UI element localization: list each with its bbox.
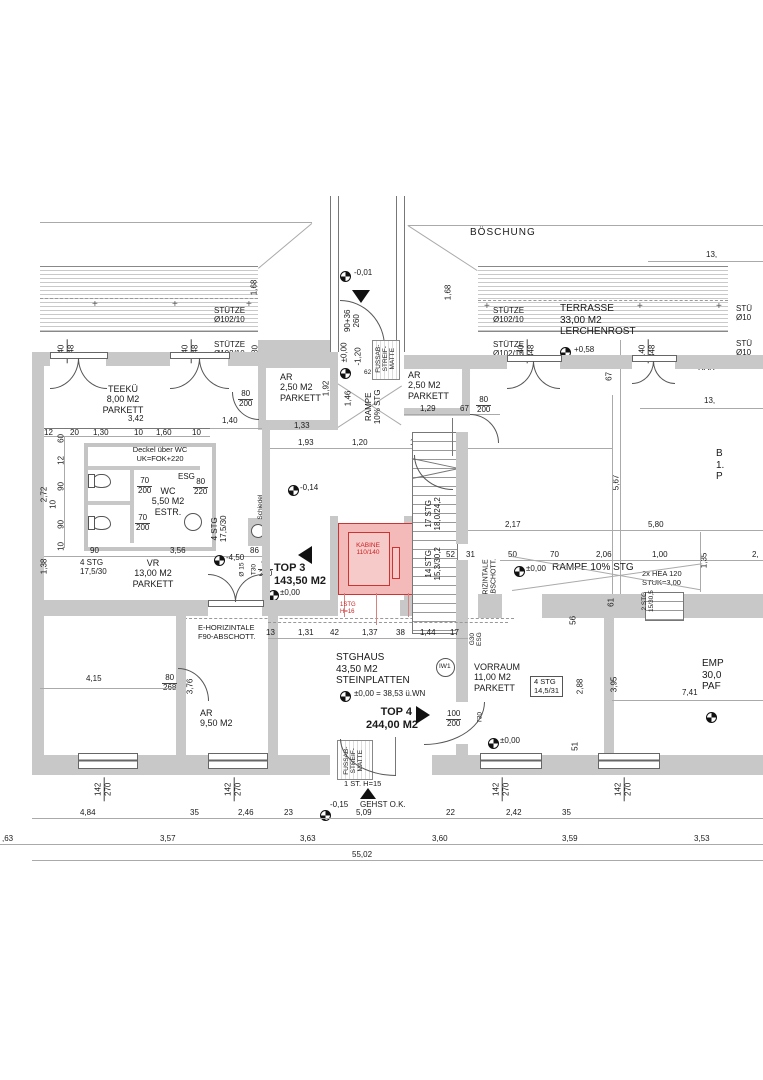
column-marker: + <box>637 302 643 312</box>
l2: 15/30,5 <box>648 583 655 619</box>
wall-segment <box>542 594 645 618</box>
stair-label-2stg: 2 STG15/30,5 <box>641 583 655 619</box>
column-size: Ø10 <box>736 313 752 322</box>
door-size-80-268: 80268 <box>162 674 177 693</box>
dim-label: 1,33 <box>294 421 310 430</box>
door-arc <box>170 358 200 389</box>
dim-label: 3,56 <box>170 546 186 555</box>
elevator-pit-line <box>408 593 409 617</box>
level-marker <box>288 485 299 496</box>
wall-segment <box>682 594 763 618</box>
dim-label: 1,29 <box>420 404 436 413</box>
room-label-ar-bottom: AR9,50 M2 <box>200 708 233 729</box>
dim-label: 2,42 <box>506 808 522 817</box>
ramp-label: RAMPE 10% STG <box>552 562 634 574</box>
dim-line <box>32 818 763 819</box>
elevator-label: KABINE110/140 <box>346 542 390 557</box>
wall-segment <box>262 428 270 602</box>
dim-label: 1,68 <box>251 272 260 302</box>
dim-label: 86 <box>250 546 259 555</box>
num: 80 <box>165 673 174 682</box>
floor-plan: BÖSCHUNG + + + + + + STÜTZEØ102/10 STÜTZ… <box>0 0 763 1080</box>
room-finish: PARKETT <box>408 391 449 401</box>
room-label-ar-right: AR2,50 M2PARKETT <box>408 370 449 401</box>
dim-line <box>268 638 468 639</box>
dim-line <box>468 530 763 531</box>
wall-segment <box>258 340 330 368</box>
dim-line <box>64 436 65 548</box>
dim-label: 3,63 <box>300 834 316 843</box>
level-value: ±0,00 <box>341 337 350 367</box>
l2: 10% STG <box>374 385 383 429</box>
level-value: -1,20 <box>355 341 364 371</box>
wall-segment <box>456 432 468 544</box>
room-area: 11,00 M2 <box>474 672 520 682</box>
entrance-arrow-icon <box>352 290 370 303</box>
stair-label-14stg: 14 STG15,3/30,2 <box>425 540 443 588</box>
room-finish: PARKETT <box>88 405 158 415</box>
dim-label: 1,31 <box>298 628 314 637</box>
wall-segment <box>675 355 763 369</box>
mat-label: FUSSAB-STREIF-MATTE <box>375 331 396 386</box>
dim-label: 1,00 <box>652 550 668 559</box>
column-name: STÜ <box>736 339 752 348</box>
dim-label: 4,15 <box>86 674 102 683</box>
wall-segment <box>258 340 266 430</box>
den: 270 <box>104 777 114 801</box>
column-label-clipped: STÜØ10 <box>736 304 752 322</box>
elevator-cab-inner <box>348 532 390 586</box>
dim-label: 67 <box>606 366 615 386</box>
level-value: -0,01 <box>354 268 372 277</box>
l2: STREIF- <box>382 331 389 386</box>
l2: ESG <box>476 625 483 653</box>
dim-label: 42 <box>330 628 339 637</box>
dim-label-clipped: 13, <box>706 250 717 259</box>
dim-label: 1,40 <box>222 416 238 425</box>
elevator-shaft-wall <box>330 516 338 602</box>
dim-label: 1,93 <box>298 438 314 447</box>
dim-label: 35 <box>190 808 199 817</box>
level-value: ±0,00 <box>280 588 300 597</box>
column-name: STÜTZE <box>493 306 524 315</box>
room-label-terrasse: TERRASSE33,00 M2LERCHENROST <box>560 303 636 338</box>
room-label-top3: TOP 3143,50 M2 <box>274 562 326 587</box>
dim-label: 7,41 <box>682 688 698 697</box>
dim-label: 5,80 <box>648 520 664 529</box>
l3: P <box>716 471 724 483</box>
room-label-vr: VR13,00 M2PARKETT <box>118 558 188 589</box>
dim-label: 13 <box>266 628 275 637</box>
dim-label: 56 <box>570 610 579 630</box>
wall-type-label: IW1 <box>439 663 451 670</box>
column-size: Ø102/10 <box>493 315 524 324</box>
site-diagonal <box>258 223 312 269</box>
num: 142 <box>94 783 103 796</box>
column-name: STÜTZE <box>214 306 245 315</box>
dim-label: 90 <box>58 514 67 534</box>
window-size-142-270: 142270 <box>225 777 244 801</box>
site-diagonal <box>407 225 477 271</box>
window <box>208 753 268 769</box>
dim-label: 17 <box>450 628 459 637</box>
l1: B <box>716 448 724 460</box>
wall-line <box>404 196 405 352</box>
terrace-right-centerline <box>478 300 728 301</box>
elevator-pit-line <box>376 593 377 625</box>
dim-label: 31 <box>466 550 475 559</box>
level-value: ±0,00 = 38,53 ü.WN <box>354 689 425 698</box>
dim-label: 1,20 <box>352 438 368 447</box>
site-label-boeschung: BÖSCHUNG <box>470 227 536 239</box>
room-area: 8,00 M2 <box>88 394 158 404</box>
room-name: TERRASSE <box>560 303 636 315</box>
dim-label-clipped: ,63 <box>2 834 13 843</box>
door-arc <box>199 358 229 389</box>
l1: 2 STG <box>641 583 648 619</box>
dim-label: 10 <box>58 536 67 556</box>
dim-label: 61 <box>608 592 617 612</box>
ramp-entry-label: RAMPE10% STG <box>365 385 383 429</box>
l1: 4 STG <box>80 558 107 567</box>
l1: G30 <box>469 625 476 653</box>
dim-label: 22 <box>446 808 455 817</box>
dim-label: 3,42 <box>128 414 144 423</box>
dim-line <box>44 436 210 437</box>
dim-line <box>40 688 176 689</box>
door-arc <box>424 702 485 745</box>
num: 142 <box>224 783 233 796</box>
toilet-icon <box>88 474 95 488</box>
room-label-teekue: TEEKÜ8,00 M2PARKETT <box>88 384 158 415</box>
dim-label: 5,09 <box>356 808 372 817</box>
l3: PAF <box>702 681 724 693</box>
dim-label: 3,60 <box>432 834 448 843</box>
site-line <box>40 222 312 223</box>
room-name: VORRAUM <box>474 662 520 672</box>
dim-label: 3,76 <box>187 671 196 701</box>
room-name: AR <box>200 708 233 718</box>
dim-label: 1,92 <box>323 373 332 403</box>
l2: 1. <box>716 460 724 472</box>
wall-segment <box>456 632 468 702</box>
dim-label: 1,37 <box>362 628 378 637</box>
elevator-step-note: 1STG H=16 <box>340 602 356 616</box>
l2: 18,0/24,2 <box>434 490 443 538</box>
dim-line <box>612 700 763 701</box>
washbasin-icon <box>184 513 202 531</box>
room-label-emp-clipped: EMP30,0PAF <box>702 658 724 693</box>
wall-segment <box>88 466 200 470</box>
dim-label-total: 55,02 <box>352 850 372 859</box>
dim-label: 1,68 <box>445 277 454 307</box>
room-area: 2,50 M2 <box>280 382 321 392</box>
level-value: +0,58 <box>574 345 594 354</box>
dim-label: 1,35 <box>701 545 710 575</box>
level-marker <box>488 738 499 749</box>
site-line <box>408 225 763 226</box>
level-value: ±0,00 <box>500 736 520 745</box>
room-label-stghaus: STGHAUS43,50 M2STEINPLATTEN <box>336 652 410 687</box>
level-marker <box>214 555 225 566</box>
room-finish: PARKETT <box>118 579 188 589</box>
window-size-142-270: 142270 <box>615 777 634 801</box>
dim-label: 1,44 <box>420 628 436 637</box>
wall-segment <box>560 355 632 369</box>
dim-line <box>700 532 701 592</box>
stair-label-17stg: 17 STG18,0/24,2 <box>425 490 443 538</box>
room-label-ar-left: AR2,50 M2PARKETT <box>280 372 321 403</box>
level-marker <box>340 271 351 282</box>
room-area: 143,50 M2 <box>274 575 326 588</box>
room-area: 244,00 M2 <box>366 719 412 732</box>
dim-label: 35 <box>562 808 571 817</box>
level-marker <box>514 566 525 577</box>
column-label: STÜTZEØ102/10 <box>493 306 524 324</box>
stair-label-wc: 4 STG17,5/30 <box>211 509 229 549</box>
room-area: 13,00 M2 <box>118 568 188 578</box>
column-marker: + <box>172 300 178 310</box>
dim-label: 3,57 <box>160 834 176 843</box>
f90-zone-line <box>268 622 508 623</box>
dim-label: 3,53 <box>694 834 710 843</box>
room-name: TOP 4 <box>366 706 412 719</box>
dim-label: 2,88 <box>577 671 586 701</box>
dim-label: 2,17 <box>505 520 521 529</box>
wall-line <box>612 395 613 618</box>
den: 270 <box>502 777 512 801</box>
door-size-label: 90+36260 <box>344 304 362 338</box>
den: 270 <box>624 777 634 801</box>
dim-label: 23 <box>284 808 293 817</box>
column-name: STÜ <box>736 304 752 313</box>
door-arc <box>507 361 534 389</box>
dim-label: 2,06 <box>596 550 612 559</box>
num: 80 <box>479 395 488 404</box>
dim-label: 2,46 <box>238 808 254 817</box>
dim-label: 90 <box>90 546 99 555</box>
dim-label: 90 <box>58 476 67 496</box>
window-size-142-270: 142270 <box>493 777 512 801</box>
wall-line <box>396 196 397 352</box>
wall-line <box>330 196 331 352</box>
door-arc <box>653 361 675 384</box>
wall-segment <box>228 352 258 366</box>
column-name: STÜTZE <box>214 340 245 349</box>
dim-label: 3,59 <box>562 834 578 843</box>
dim-label: 38 <box>396 628 405 637</box>
wall-line <box>338 196 339 352</box>
dim-label: 10 <box>50 494 59 514</box>
room-name: TEEKÜ <box>88 384 158 394</box>
stair-label-vr: 4 STG17,5/30 <box>80 558 107 576</box>
room-finish: LERCHENROST <box>560 326 636 338</box>
room-area: 2,50 M2 <box>408 380 449 390</box>
dim-line <box>0 844 763 845</box>
room-name: STGHAUS <box>336 652 410 664</box>
l1: EMP <box>702 658 724 670</box>
column-size: Ø102/10 <box>214 315 245 324</box>
room-area: 43,50 M2 <box>336 664 410 676</box>
wall-segment <box>88 501 132 505</box>
dim-label: 60 <box>58 428 67 448</box>
wall-segment <box>262 600 338 616</box>
elevator-name: KABINE <box>346 542 390 549</box>
l3: MATTE <box>389 331 396 386</box>
door-leaf <box>452 418 453 456</box>
column-marker: + <box>92 300 98 310</box>
window <box>78 753 138 769</box>
level-value: -0,14 <box>300 483 318 492</box>
elevator-size: 110/140 <box>346 549 390 556</box>
num: 142 <box>492 783 501 796</box>
dim-label: 70 <box>550 550 559 559</box>
room-finish: PARKETT <box>474 683 520 693</box>
unit-arrow-icon <box>298 546 312 564</box>
room-name: AR <box>280 372 321 382</box>
entrance-arrow-icon <box>360 788 376 799</box>
room-area: 5,50 M2 <box>140 496 196 506</box>
dim-label-clipped: 13, <box>704 396 715 405</box>
dim-label-clipped: 2, <box>752 550 759 559</box>
l1: FUSSAB- <box>375 331 382 386</box>
num: 142 <box>614 783 623 796</box>
tech-label-ehoriz: E-HORIZINTALEF90-ABSCHOTT. <box>198 624 256 641</box>
wall-segment <box>130 470 134 543</box>
num: 80 <box>196 477 205 486</box>
dim-line <box>648 261 763 262</box>
level-marker <box>340 691 351 702</box>
den: 270 <box>234 777 244 801</box>
glass-label: G30ESG <box>469 625 483 653</box>
room-label-top4: TOP 4244,00 M2 <box>366 706 412 731</box>
door-arc <box>470 414 499 443</box>
l2: UK=FOK+220 <box>110 455 210 464</box>
level-value: -0,15 <box>330 800 348 809</box>
l2: 17,5/30 <box>80 567 107 576</box>
dim-label: 67 <box>460 404 469 413</box>
dim-label: 3,95 <box>611 669 620 699</box>
door-arc <box>208 574 236 602</box>
duct-label: Ø 15 <box>238 558 245 582</box>
dim-label: 12 <box>58 450 67 470</box>
dim-label: 52 <box>446 550 455 559</box>
room-label-wc: WC5,50 M2ESTR. <box>140 486 196 517</box>
wall-segment <box>106 352 170 366</box>
dim-line <box>404 414 500 415</box>
l2: 260 <box>353 304 362 338</box>
level-marker <box>706 712 717 723</box>
room-label-vorraum: VORRAUM11,00 M2PARKETT <box>474 662 520 693</box>
room-area: 33,00 M2 <box>560 315 636 327</box>
door-arc <box>50 358 79 389</box>
room-name: WC <box>140 486 196 496</box>
terrace-left-centerline <box>40 298 258 299</box>
dim-line <box>210 428 266 429</box>
room-area: 9,50 M2 <box>200 718 233 728</box>
l2: 30,0 <box>702 670 724 682</box>
room-label-clipped: B1.P <box>716 448 724 483</box>
wall-segment <box>32 616 44 755</box>
level-value: ±0,00 <box>526 564 546 573</box>
column-marker: + <box>716 302 722 312</box>
window-size-142-270: 142270 <box>95 777 114 801</box>
dim-label: 51 <box>572 736 581 756</box>
room-finish: PARKETT <box>280 393 321 403</box>
door-arc <box>533 361 560 389</box>
l2: 17,5/30 <box>220 509 229 549</box>
dim-line <box>32 860 763 861</box>
dim-label: 1,46 <box>345 383 354 413</box>
elevator-door-slot <box>392 547 400 579</box>
room-finish: STEINPLATTEN <box>336 675 410 687</box>
column-marker: + <box>484 302 490 312</box>
wall-segment <box>32 600 208 616</box>
door-size-80-200: 80200 <box>476 396 491 415</box>
l2: F90-ABSCHOTT. <box>198 633 256 642</box>
l2: 14,5/31 <box>534 687 559 696</box>
toilet-icon <box>88 516 95 530</box>
dim-label: 62 <box>364 369 371 376</box>
room-name: VR <box>118 558 188 568</box>
tech-label-deckel: Deckel über WCUK=FOK+220 <box>110 446 210 463</box>
room-name: AR <box>408 370 449 380</box>
window <box>480 753 542 769</box>
l2: 15,3/30,2 <box>434 540 443 588</box>
level-marker <box>320 810 331 821</box>
level-marker <box>340 368 351 379</box>
column-label: STÜTZEØ102/10 <box>214 306 245 324</box>
door-arc <box>632 361 654 384</box>
dim-line <box>640 408 763 409</box>
dim-label: 2,72 <box>41 479 50 509</box>
wall-segment <box>478 594 502 618</box>
dim-label: 4,84 <box>80 808 96 817</box>
wall-segment <box>404 355 507 369</box>
num: 70 <box>140 476 149 485</box>
window <box>598 753 660 769</box>
stair-label-vorraum: 4 STG14,5/31 <box>530 676 563 697</box>
den: 200 <box>135 523 150 533</box>
